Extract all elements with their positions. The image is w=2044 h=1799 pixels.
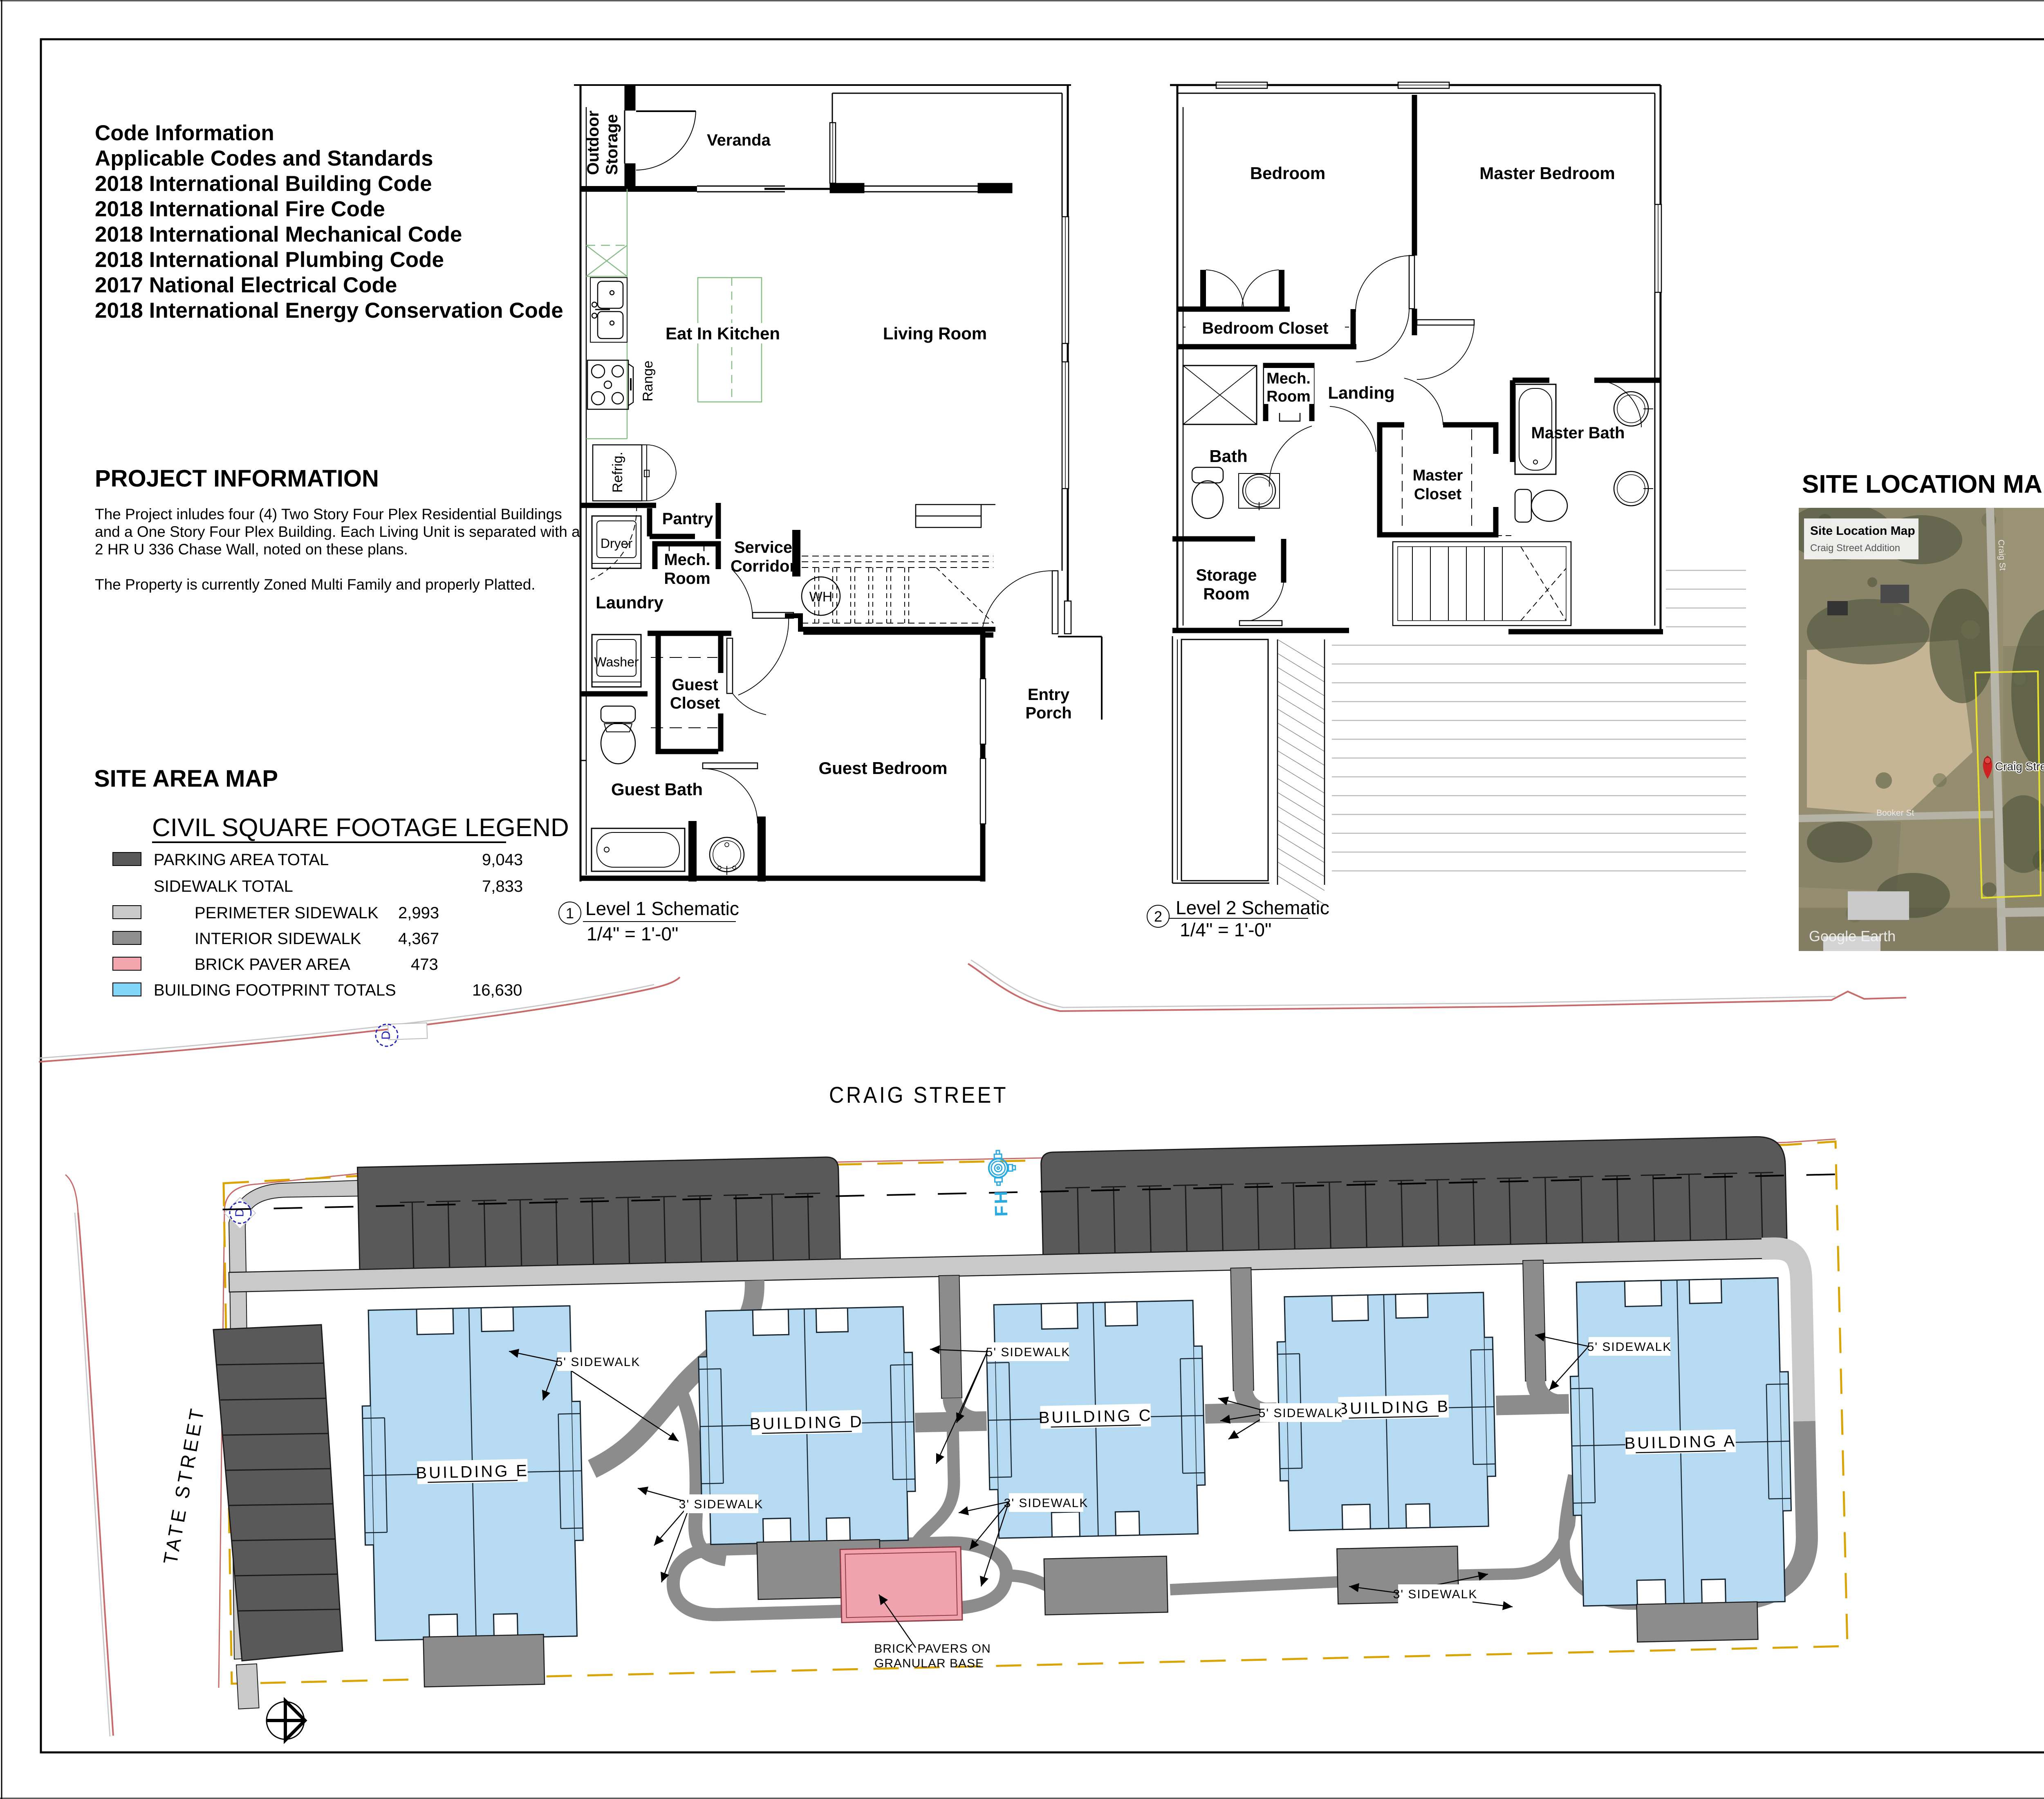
svg-text:Site Location Map: Site Location Map bbox=[1810, 524, 1915, 538]
svg-text:Storage: Storage bbox=[1196, 566, 1257, 584]
svg-text:5' SIDEWALK: 5' SIDEWALK bbox=[556, 1355, 641, 1369]
svg-text:Level 2 Schematic: Level 2 Schematic bbox=[1176, 897, 1329, 918]
svg-text:FH: FH bbox=[991, 1189, 1011, 1217]
svg-text:Corridor: Corridor bbox=[731, 557, 796, 575]
svg-text:The Property is currently Zone: The Property is currently Zoned Multi Fa… bbox=[95, 576, 536, 593]
svg-text:INTERIOR SIDEWALK: INTERIOR SIDEWALK bbox=[195, 930, 361, 948]
svg-text:2,993: 2,993 bbox=[398, 904, 439, 922]
svg-text:2017 National Electrical Code: 2017 National Electrical Code bbox=[95, 273, 397, 297]
svg-text:CRAIG STREET: CRAIG STREET bbox=[829, 1082, 1008, 1108]
svg-text:1/4" = 1'-0": 1/4" = 1'-0" bbox=[587, 923, 678, 944]
svg-text:2018 International Mechanical: 2018 International Mechanical Code bbox=[95, 222, 462, 247]
svg-text:Landing: Landing bbox=[1328, 383, 1394, 402]
svg-text:Entry: Entry bbox=[1028, 686, 1070, 704]
svg-text:16,630: 16,630 bbox=[472, 981, 522, 999]
svg-text:Laundry: Laundry bbox=[596, 593, 663, 612]
svg-text:Service: Service bbox=[734, 538, 792, 556]
svg-text:Dryer: Dryer bbox=[601, 536, 633, 551]
svg-text:473: 473 bbox=[411, 956, 438, 974]
svg-text:BUILDING A: BUILDING A bbox=[1624, 1432, 1737, 1453]
svg-text:Room: Room bbox=[664, 570, 710, 588]
svg-text:BRICK PAVER AREA: BRICK PAVER AREA bbox=[195, 956, 350, 974]
svg-text:Room: Room bbox=[1203, 585, 1249, 603]
svg-text:Google Earth: Google Earth bbox=[1809, 928, 1896, 944]
svg-text:BUILDING E: BUILDING E bbox=[416, 1462, 529, 1482]
svg-text:Bath: Bath bbox=[1209, 446, 1247, 466]
svg-text:7,833: 7,833 bbox=[482, 877, 523, 895]
svg-text:Closet: Closet bbox=[1414, 486, 1461, 503]
svg-text:The Project inludes four (4) T: The Project inludes four (4) Two Story F… bbox=[95, 506, 562, 523]
svg-text:D: D bbox=[379, 1031, 393, 1040]
svg-text:SITE AREA MAP: SITE AREA MAP bbox=[94, 765, 278, 792]
svg-text:Applicable Codes and Standards: Applicable Codes and Standards bbox=[95, 146, 433, 170]
svg-text:Living Room: Living Room bbox=[883, 324, 987, 343]
svg-text:Booker St: Booker St bbox=[1876, 808, 1914, 818]
svg-text:Bedroom: Bedroom bbox=[1250, 164, 1325, 183]
svg-text:Outdoor: Outdoor bbox=[584, 110, 602, 175]
svg-text:Craig Street Addition: Craig Street Addition bbox=[1995, 760, 2044, 773]
svg-text:4,367: 4,367 bbox=[398, 930, 439, 948]
svg-text:Eat In Kitchen: Eat In Kitchen bbox=[666, 324, 780, 343]
svg-text:1: 1 bbox=[566, 905, 574, 922]
svg-text:Guest Bedroom: Guest Bedroom bbox=[818, 758, 947, 778]
svg-text:PROJECT INFORMATION: PROJECT INFORMATION bbox=[95, 465, 379, 492]
svg-text:3' SIDEWALK: 3' SIDEWALK bbox=[1004, 1496, 1089, 1510]
svg-text:2 HR U 336 Chase Wall, noted o: 2 HR U 336 Chase Wall, noted on these pl… bbox=[95, 541, 408, 558]
svg-text:Craig Street Addition: Craig Street Addition bbox=[1810, 543, 1900, 554]
svg-text:BRICK PAVERS ON: BRICK PAVERS ON bbox=[874, 1642, 991, 1655]
svg-text:3' SIDEWALK: 3' SIDEWALK bbox=[679, 1498, 764, 1511]
svg-text:GRANULAR BASE: GRANULAR BASE bbox=[874, 1657, 984, 1670]
svg-text:SIDEWALK TOTAL: SIDEWALK TOTAL bbox=[154, 877, 293, 895]
svg-text:BUILDING D: BUILDING D bbox=[749, 1413, 864, 1433]
svg-text:Guest: Guest bbox=[672, 676, 718, 694]
svg-text:Master Bath: Master Bath bbox=[1531, 424, 1625, 442]
svg-text:BUILDING C: BUILDING C bbox=[1038, 1406, 1153, 1427]
svg-text:Level 1 Schematic: Level 1 Schematic bbox=[585, 898, 739, 919]
svg-text:2018 International Building Co: 2018 International Building Code bbox=[95, 172, 432, 196]
svg-text:and a One Story Four Plex Buil: and a One Story Four Plex Building. Each… bbox=[95, 523, 580, 540]
svg-text:Storage: Storage bbox=[603, 114, 621, 175]
svg-text:SITE LOCATION MAP: SITE LOCATION MAP bbox=[1802, 470, 2044, 498]
svg-text:Master Bedroom: Master Bedroom bbox=[1479, 164, 1615, 183]
svg-text:2: 2 bbox=[1154, 908, 1162, 925]
svg-text:Guest Bath: Guest Bath bbox=[611, 780, 703, 799]
svg-text:Range: Range bbox=[640, 361, 656, 402]
svg-text:3' SIDEWALK: 3' SIDEWALK bbox=[1393, 1588, 1478, 1601]
svg-text:WH: WH bbox=[809, 589, 833, 605]
svg-text:5' SIDEWALK: 5' SIDEWALK bbox=[1259, 1406, 1343, 1420]
svg-text:Mech.: Mech. bbox=[664, 551, 710, 569]
svg-text:5' SIDEWALK: 5' SIDEWALK bbox=[1587, 1340, 1672, 1354]
svg-text:2018 International Fire Code: 2018 International Fire Code bbox=[95, 197, 385, 221]
svg-text:Pantry: Pantry bbox=[662, 510, 713, 528]
svg-text:Mech.: Mech. bbox=[1266, 370, 1311, 387]
svg-text:Room: Room bbox=[1266, 388, 1311, 405]
svg-text:CIVIL SQUARE FOOTAGE LEGEND: CIVIL SQUARE FOOTAGE LEGEND bbox=[152, 814, 569, 842]
svg-text:Craig St: Craig St bbox=[1996, 539, 2007, 571]
svg-text:PERIMETER SIDEWALK: PERIMETER SIDEWALK bbox=[195, 904, 379, 922]
svg-text:5' SIDEWALK: 5' SIDEWALK bbox=[986, 1346, 1071, 1359]
svg-text:PARKING AREA TOTAL: PARKING AREA TOTAL bbox=[154, 851, 329, 869]
svg-text:BUILDING FOOTPRINT TOTALS: BUILDING FOOTPRINT TOTALS bbox=[154, 981, 396, 999]
svg-text:BUILDING B: BUILDING B bbox=[1337, 1397, 1450, 1418]
svg-text:Refrig.: Refrig. bbox=[610, 452, 625, 493]
svg-text:2018 International Plumbing Co: 2018 International Plumbing Code bbox=[95, 248, 444, 272]
svg-text:Master: Master bbox=[1413, 467, 1463, 484]
svg-text:Veranda: Veranda bbox=[707, 131, 771, 149]
svg-text:Washer: Washer bbox=[594, 655, 639, 669]
svg-text:Code Information: Code Information bbox=[95, 121, 274, 145]
svg-text:9,043: 9,043 bbox=[482, 851, 523, 869]
svg-text:Closet: Closet bbox=[670, 694, 720, 712]
svg-text:Bedroom Closet: Bedroom Closet bbox=[1202, 319, 1329, 337]
svg-text:Porch: Porch bbox=[1025, 704, 1071, 722]
svg-text:2018 International Energy Cons: 2018 International Energy Conservation C… bbox=[95, 298, 563, 323]
svg-text:1/4" = 1'-0": 1/4" = 1'-0" bbox=[1180, 919, 1271, 940]
